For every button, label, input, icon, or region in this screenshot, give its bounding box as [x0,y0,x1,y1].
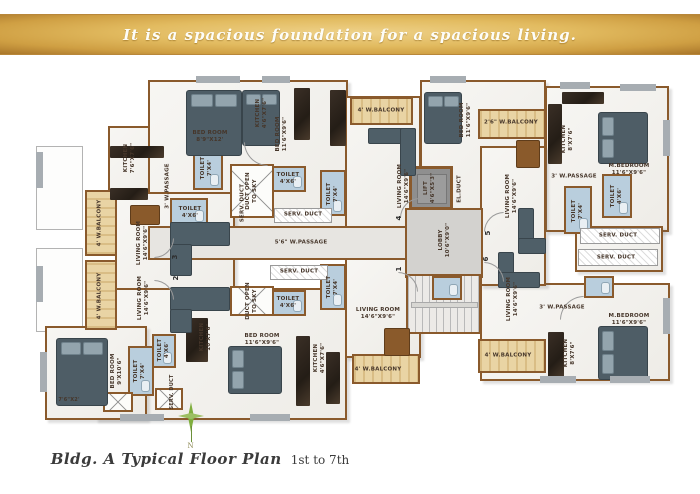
sofa-furniture [518,238,546,254]
toilet-room [128,346,154,396]
kitchen-counter [296,336,310,406]
window-sill [36,152,43,188]
sofa-furniture [170,287,230,311]
window-sill [620,84,656,91]
toilet-room [270,166,306,192]
sofa-furniture [170,222,230,246]
sofa-furniture [400,128,416,176]
dining-table [130,205,160,225]
pillow [444,96,459,107]
kitchen-counter [562,92,604,104]
kitchen-counter [110,146,164,158]
flat-number: 6 [482,257,490,262]
pillow [602,139,614,158]
balcony [350,97,413,125]
balcony [478,109,546,139]
pillow [262,94,277,105]
toilet-room [602,174,632,218]
lobby-floor [405,208,483,278]
bed-furniture [424,92,462,144]
window-sill [40,352,47,392]
pillow [602,354,614,374]
pillow [191,94,213,107]
window-sill [663,298,670,334]
window-sill [36,266,43,302]
kitchen-counter [548,104,562,164]
kitchen-counter [326,352,340,404]
flat-number: 1 [395,267,403,272]
balcony [478,339,546,373]
window-sill [196,76,240,83]
window-sill [540,376,576,383]
page: It is a spacious foundation for a spacio… [0,0,700,494]
flat-number: 4 [395,216,403,221]
plan-caption-script: Bldg. A Typical Floor Plan [51,450,282,468]
toilet-room [564,186,592,234]
pillow [232,350,244,368]
pillow [232,371,244,389]
service-duct [270,265,328,280]
pillow [602,117,614,136]
pillow [246,94,261,105]
pillow [83,342,103,355]
kitchen-counter [110,188,148,200]
toilet-room [584,276,614,298]
window-sill [610,376,650,383]
sofa-furniture [498,272,540,288]
bed-furniture [186,90,242,156]
flat-number: 2 [172,276,180,281]
window-sill [120,414,164,421]
compass-needle-horizontal [178,413,204,419]
balcony [352,354,420,384]
sofa-furniture [170,309,192,333]
service-duct [274,208,332,223]
duct-box [230,164,274,218]
pillow [61,342,81,355]
balcony [85,260,117,330]
bed-furniture [56,338,108,406]
sofa-furniture [170,244,192,276]
stair-landing [411,302,478,308]
pillow [215,94,237,107]
toilet-room [152,334,176,368]
service-duct [578,249,658,266]
window-sill [250,414,290,421]
toilet-room [432,276,462,300]
dining-table [384,328,410,356]
service-duct [580,228,660,244]
kitchen-counter [548,332,564,378]
window-sill [663,120,670,156]
pillow [428,96,443,107]
bed-furniture [598,326,648,380]
compass-spike [191,426,192,442]
window-sill [560,82,590,89]
compass-rose: N [176,402,206,450]
kitchen-counter [294,88,310,140]
flat-number: 5 [484,231,492,236]
window-sill [430,76,466,83]
bed-furniture [242,90,280,146]
flat-number: 3 [171,255,179,260]
toilet-room [270,290,306,316]
bed-furniture [228,346,282,394]
duct-box [230,286,274,316]
floor-plan: BED ROOM 8'9"X12' KITCHEN 7'6"X7'6" 3' W… [0,0,700,494]
pillow [602,331,614,351]
dining-table [516,140,540,168]
open-terrace [36,146,83,230]
plan-caption-plain: 1st to 7th [291,453,349,467]
open-terrace [36,248,83,332]
kitchen-counter [330,90,346,146]
plan-caption: Bldg. A Typical Floor Plan 1st to 7th [40,449,360,468]
window-sill [262,76,290,83]
bed-furniture [598,112,648,164]
